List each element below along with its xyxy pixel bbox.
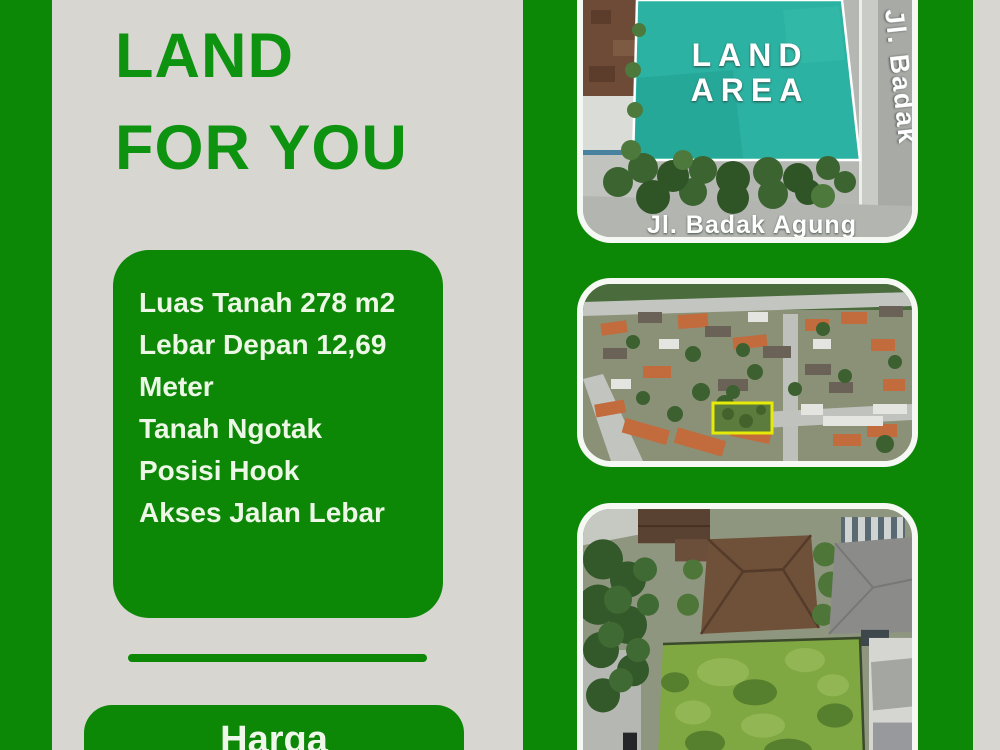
- divider-line: [128, 654, 427, 662]
- detail-position: Posisi Hook: [139, 450, 423, 492]
- title-line-2: FOR YOU: [115, 102, 408, 194]
- photo-aerial-neighborhood: [577, 278, 918, 467]
- land-area-overlay-line1: LAND: [692, 37, 809, 73]
- land-area-overlay-line2: AREA: [691, 72, 810, 108]
- detail-shape: Tanah Ngotak: [139, 408, 423, 450]
- street-label-bottom: Jl. Badak Agung: [647, 211, 857, 237]
- aerial-land-area-image: LAND AREA Jl. Badak Agung Jl. Badak: [583, 0, 912, 237]
- left-accent-bar: [0, 0, 52, 750]
- detail-access: Akses Jalan Lebar: [139, 492, 423, 534]
- photo-panel: LAND AREA Jl. Badak Agung Jl. Badak: [523, 0, 973, 750]
- detail-front-width: Lebar Depan 12,69 Meter: [139, 324, 423, 408]
- price-label: Harga: [84, 705, 464, 750]
- detail-land-area: Luas Tanah 278 m2: [139, 282, 423, 324]
- land-sale-flyer: LAND FOR YOU Luas Tanah 278 m2 Lebar Dep…: [0, 0, 1000, 750]
- price-card: Harga: [84, 705, 464, 750]
- page-title: LAND FOR YOU: [115, 10, 408, 194]
- property-details-card: Luas Tanah 278 m2 Lebar Depan 12,69 Mete…: [113, 250, 443, 618]
- photo-aerial-property: [577, 503, 918, 750]
- photo-aerial-land-area: LAND AREA Jl. Badak Agung Jl. Badak: [577, 0, 918, 243]
- aerial-neighborhood-image: [583, 284, 912, 461]
- aerial-property-image: [583, 509, 912, 750]
- title-line-1: LAND: [115, 10, 408, 102]
